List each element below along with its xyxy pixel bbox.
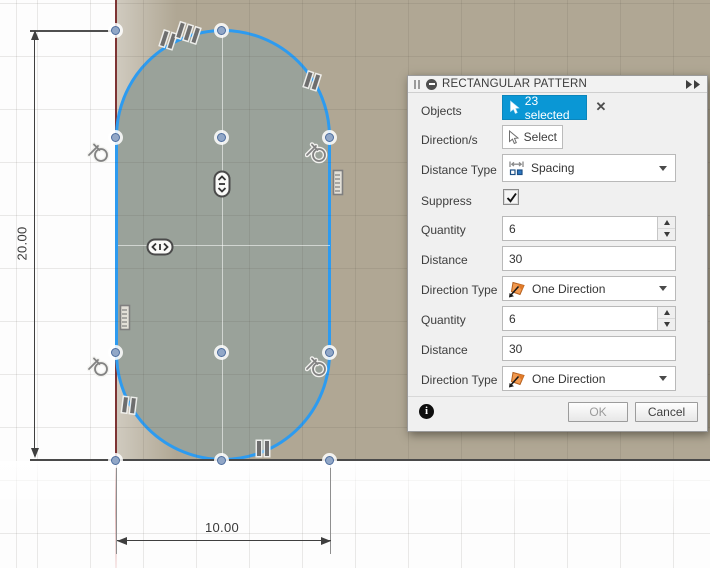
distance2-label: Distance bbox=[421, 343, 468, 357]
tangent-icon[interactable] bbox=[305, 142, 328, 169]
direction-type2-label: Direction Type bbox=[421, 373, 497, 387]
dimension-value-width[interactable]: 10.00 bbox=[192, 520, 252, 535]
symmetry-horizontal-icon[interactable] bbox=[146, 238, 174, 261]
collapse-icon[interactable] bbox=[426, 79, 437, 90]
collinear-icon[interactable] bbox=[332, 169, 344, 201]
spacing-icon bbox=[508, 160, 525, 177]
parallel-icon[interactable] bbox=[122, 397, 140, 414]
sketch-point[interactable] bbox=[325, 133, 334, 142]
direction-type1-label: Direction Type bbox=[421, 283, 497, 297]
objects-selection-count: 23 selected bbox=[525, 94, 580, 122]
dialog-header[interactable]: RECTANGULAR PATTERN bbox=[408, 76, 707, 93]
drag-grip-icon[interactable] bbox=[414, 80, 421, 89]
dimension-line-vertical bbox=[34, 36, 35, 456]
arrow-right-icon bbox=[321, 537, 331, 545]
chevron-down-icon[interactable] bbox=[659, 376, 667, 381]
ok-button[interactable]: OK bbox=[568, 402, 628, 422]
sketch-point[interactable] bbox=[217, 26, 226, 35]
direction-type1-dropdown[interactable] bbox=[502, 276, 676, 301]
directions-label: Direction/s bbox=[421, 133, 478, 147]
spin-up-icon[interactable] bbox=[658, 307, 675, 319]
direction-select-label: Select bbox=[524, 130, 557, 144]
rectangular-pattern-dialog[interactable]: RECTANGULAR PATTERN Objects 23 selected … bbox=[407, 75, 708, 432]
dimension-value-height[interactable]: 20.00 bbox=[15, 214, 30, 274]
quantity1-input[interactable] bbox=[503, 222, 657, 236]
checkmark-icon bbox=[505, 191, 518, 204]
arrow-up-icon bbox=[31, 30, 39, 40]
collinear-icon[interactable] bbox=[119, 304, 131, 336]
dialog-title: RECTANGULAR PATTERN bbox=[442, 78, 681, 90]
quantity1-field[interactable] bbox=[502, 216, 676, 241]
distance2-field[interactable] bbox=[502, 336, 676, 361]
quantity1-label: Quantity bbox=[421, 223, 466, 237]
arrow-left-icon bbox=[117, 537, 127, 545]
quantity1-stepper[interactable] bbox=[657, 217, 675, 240]
chevron-down-icon[interactable] bbox=[659, 166, 667, 171]
close-icon[interactable]: ✕ bbox=[593, 99, 609, 115]
symmetry-vertical-icon[interactable] bbox=[213, 170, 231, 203]
objects-label: Objects bbox=[421, 104, 462, 118]
expand-icon[interactable] bbox=[686, 80, 701, 89]
distance-type-label: Distance Type bbox=[421, 163, 497, 177]
distance2-input[interactable] bbox=[503, 342, 675, 356]
sketch-point[interactable] bbox=[111, 26, 120, 35]
distance-type-value[interactable] bbox=[525, 161, 659, 175]
cancel-button[interactable]: Cancel bbox=[635, 402, 698, 422]
distance-type-dropdown[interactable] bbox=[502, 154, 676, 182]
direction-type2-value[interactable] bbox=[526, 372, 659, 386]
distance1-label: Distance bbox=[421, 253, 468, 267]
one-direction-icon bbox=[507, 370, 526, 388]
sketch-point[interactable] bbox=[325, 456, 334, 465]
sketch-point[interactable] bbox=[111, 456, 120, 465]
construction-centerline-vertical[interactable] bbox=[222, 31, 223, 461]
direction-type2-dropdown[interactable] bbox=[502, 366, 676, 391]
dimension-line-horizontal bbox=[117, 540, 331, 541]
cursor-icon bbox=[509, 100, 520, 115]
suppress-label: Suppress bbox=[421, 194, 472, 208]
footer-divider bbox=[408, 396, 707, 397]
cursor-icon bbox=[508, 130, 520, 145]
quantity2-label: Quantity bbox=[421, 313, 466, 327]
spin-down-icon[interactable] bbox=[658, 229, 675, 240]
sketch-point[interactable] bbox=[217, 133, 226, 142]
parallel-icon[interactable] bbox=[257, 441, 273, 456]
tangent-icon[interactable] bbox=[87, 356, 110, 383]
chevron-down-icon[interactable] bbox=[659, 286, 667, 291]
distance1-input[interactable] bbox=[503, 252, 675, 266]
distance1-field[interactable] bbox=[502, 246, 676, 271]
one-direction-icon bbox=[507, 280, 526, 298]
spin-up-icon[interactable] bbox=[658, 217, 675, 229]
tangent-icon[interactable] bbox=[87, 142, 110, 169]
info-icon[interactable]: i bbox=[419, 404, 434, 419]
quantity2-stepper[interactable] bbox=[657, 307, 675, 330]
direction-select-button[interactable]: Select bbox=[502, 125, 563, 149]
sketch-point[interactable] bbox=[111, 348, 120, 357]
objects-selection-button[interactable]: 23 selected bbox=[502, 95, 587, 120]
direction-type1-value[interactable] bbox=[526, 282, 659, 296]
sketch-point[interactable] bbox=[111, 133, 120, 142]
quantity2-field[interactable] bbox=[502, 306, 676, 331]
body-edge-line[interactable] bbox=[30, 459, 710, 461]
quantity2-input[interactable] bbox=[503, 312, 657, 326]
tangent-icon[interactable] bbox=[305, 356, 328, 383]
dimension-witness-top bbox=[30, 30, 116, 32]
arrow-down-icon bbox=[31, 448, 39, 458]
spin-down-icon[interactable] bbox=[658, 319, 675, 330]
sketch-point[interactable] bbox=[217, 348, 226, 357]
suppress-checkbox[interactable] bbox=[503, 189, 519, 205]
edge-glow bbox=[0, 461, 710, 513]
sketch-point[interactable] bbox=[217, 456, 226, 465]
